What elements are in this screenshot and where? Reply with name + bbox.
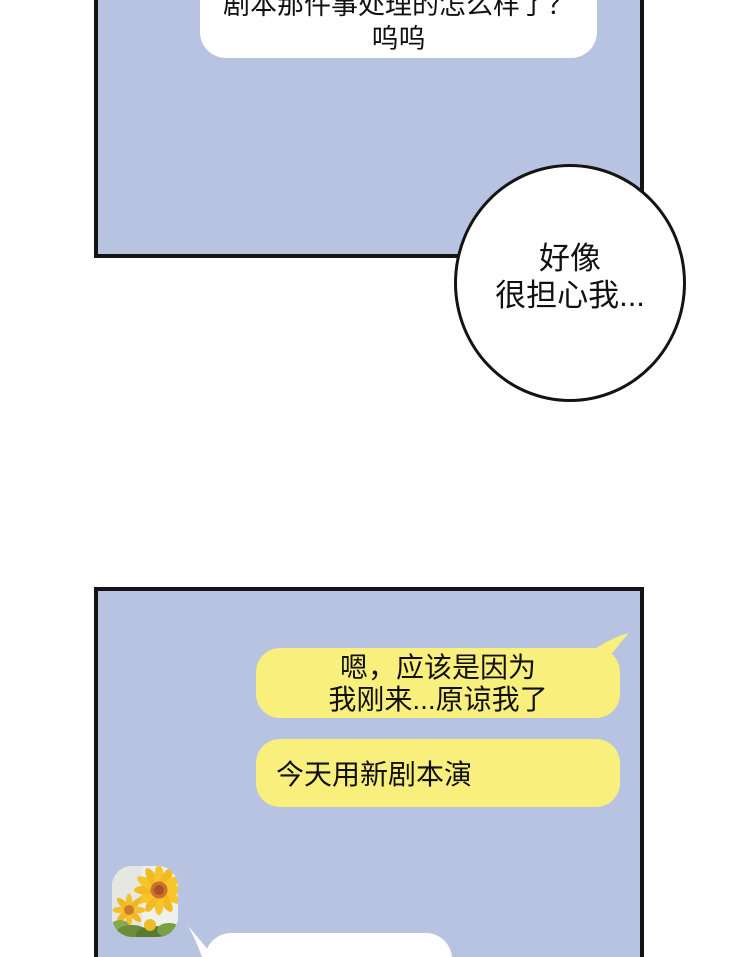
sunflower-photo-icon (112, 866, 178, 937)
partial-cutoff-text: 好的，知道了 (245, 950, 452, 957)
message-line: 今天用新剧本演 (276, 753, 472, 793)
message-line: 剧本那件事处理的怎么样了？ (218, 0, 579, 22)
sent-message-bubble: 今天用新剧本演 (256, 739, 620, 807)
comic-page: 剧本那件事处理的怎么样了？ 呜呜 好像 很担心我... 嗯，应该是因为 我刚来.… (0, 0, 740, 957)
avatar (112, 866, 178, 937)
thought-bubble: 好像 很担心我... (454, 164, 686, 402)
message-line: 呜呜 (218, 22, 579, 56)
sent-message-bubble: 嗯，应该是因为 我刚来...原谅我了 (256, 648, 620, 718)
message-line: 我刚来...原谅我了 (256, 684, 620, 716)
received-message-bubble-partial: 好的，知道了 (205, 933, 452, 957)
received-message-bubble: 剧本那件事处理的怎么样了？ 呜呜 (200, 0, 597, 58)
thought-line: 好像 (539, 240, 601, 277)
thought-line: 很担心我... (495, 277, 645, 314)
message-line: 嗯，应该是因为 (256, 652, 620, 684)
